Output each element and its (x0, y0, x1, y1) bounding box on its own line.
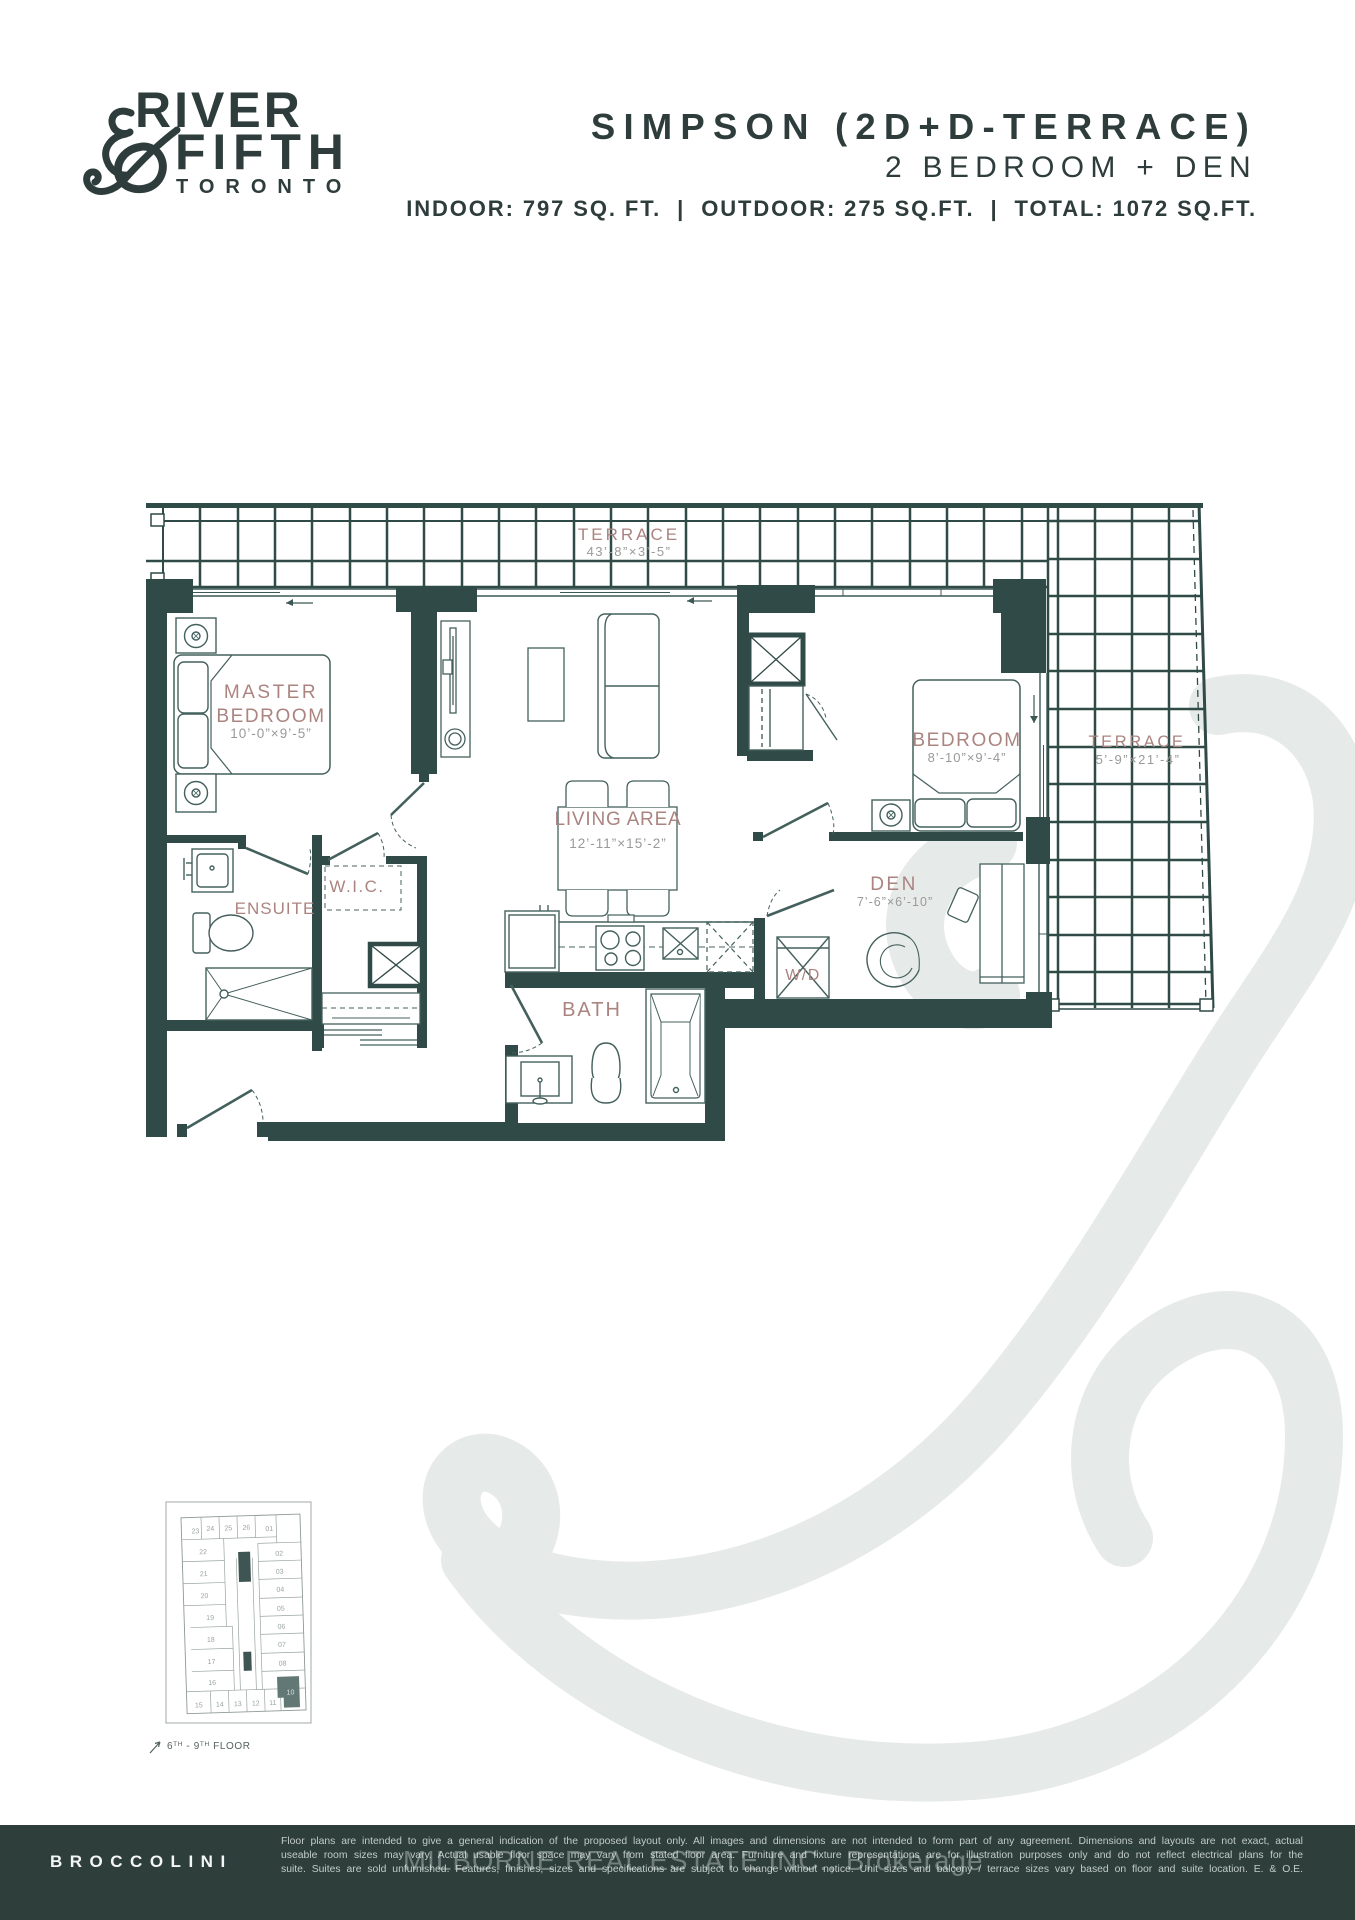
svg-text:25: 25 (224, 1525, 232, 1532)
svg-text:W.I.C.: W.I.C. (329, 877, 384, 896)
svg-text:43’-8”×3’-5”: 43’-8”×3’-5” (587, 544, 672, 559)
svg-text:BEDROOM: BEDROOM (912, 730, 1021, 751)
svg-text:LIVING AREA: LIVING AREA (554, 809, 681, 830)
svg-text:16: 16 (208, 1680, 216, 1687)
svg-text:17: 17 (208, 1659, 216, 1666)
svg-text:03: 03 (276, 1569, 284, 1576)
svg-text:11: 11 (269, 1700, 277, 1707)
svg-text:TERRACE: TERRACE (578, 525, 680, 544)
svg-text:13: 13 (234, 1701, 242, 1708)
svg-text:21: 21 (200, 1571, 208, 1578)
svg-text:BATH: BATH (562, 999, 622, 1021)
svg-text:W/D: W/D (785, 967, 821, 984)
svg-text:06: 06 (277, 1624, 285, 1631)
svg-text:07: 07 (278, 1642, 286, 1649)
svg-text:BEDROOM: BEDROOM (216, 706, 325, 727)
svg-text:08: 08 (279, 1661, 287, 1668)
svg-text:DEN: DEN (870, 874, 918, 895)
svg-text:15: 15 (195, 1702, 203, 1709)
svg-text:5’-9”×21’-4”: 5’-9”×21’-4” (1096, 752, 1181, 767)
svg-text:26: 26 (242, 1525, 250, 1532)
svg-text:8’-10”×9’-4”: 8’-10”×9’-4” (928, 750, 1007, 765)
svg-text:23: 23 (191, 1528, 199, 1535)
svg-text:ENSUITE: ENSUITE (235, 899, 316, 918)
svg-text:22: 22 (199, 1549, 207, 1556)
svg-text:18: 18 (207, 1637, 215, 1644)
svg-text:12: 12 (252, 1700, 260, 1707)
svg-text:7’-6”×6’-10”: 7’-6”×6’-10” (857, 895, 933, 909)
svg-text:24: 24 (206, 1526, 214, 1533)
svg-text:02: 02 (275, 1551, 283, 1558)
svg-text:04: 04 (276, 1587, 284, 1594)
svg-text:12’-11”×15’-2”: 12’-11”×15’-2” (569, 836, 666, 851)
svg-text:01: 01 (265, 1526, 273, 1533)
svg-text:05: 05 (277, 1606, 285, 1613)
svg-text:20: 20 (200, 1593, 208, 1600)
svg-text:14: 14 (216, 1702, 224, 1709)
svg-text:MASTER: MASTER (224, 682, 318, 703)
svg-text:10’-0”×9’-5”: 10’-0”×9’-5” (230, 726, 311, 741)
svg-text:TERRACE: TERRACE (1088, 733, 1185, 751)
svg-text:10: 10 (287, 1689, 295, 1696)
svg-text:19: 19 (206, 1615, 214, 1622)
